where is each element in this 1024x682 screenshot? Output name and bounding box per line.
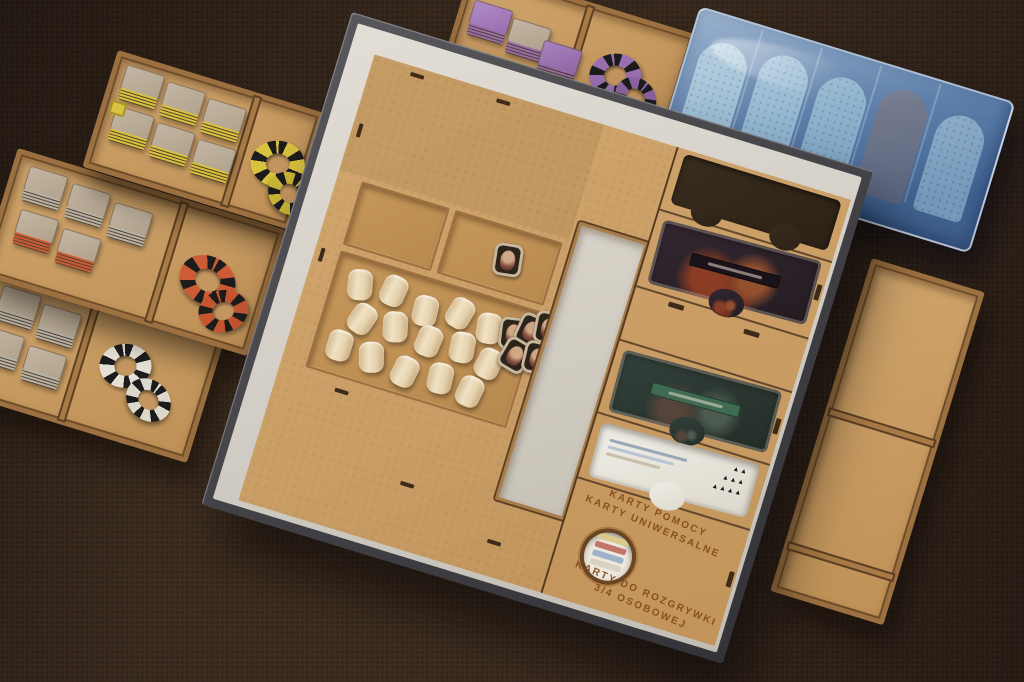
wood-barrel (359, 342, 385, 373)
wood-barrel (323, 327, 356, 364)
joint-slot (334, 388, 349, 396)
card-text-lines (605, 435, 689, 480)
wood-barrel (346, 268, 374, 301)
joint-slot (400, 481, 415, 489)
joint-slot (743, 329, 760, 338)
wood-barrel (447, 330, 477, 365)
wood-barrel (411, 322, 446, 360)
wood-barrel (425, 360, 456, 396)
card-title-band (649, 382, 741, 418)
wood-barrel (441, 294, 478, 333)
portrait-token (491, 241, 525, 278)
u-notch (687, 196, 725, 230)
wood-barrel (410, 293, 441, 329)
engraving-play-cards: KARTY DO ROZGRYWKI 3/4 OSOBOWEJ (567, 558, 718, 643)
card-title-band (689, 253, 781, 289)
wood-barrel (386, 352, 422, 391)
joint-slot (668, 301, 685, 310)
wood-barrel (382, 311, 409, 343)
dice-pips: ▲▲ ▲▲▲ ▲▲▲▲ (710, 459, 749, 499)
wood-barrel (376, 272, 412, 311)
joint-slot (487, 539, 502, 547)
photo-scene: ▲▲ ▲▲▲ ▲▲▲▲ KARTY POMOCY KARTY UNIWERSAL… (0, 0, 1024, 682)
joint-slot (318, 247, 326, 262)
